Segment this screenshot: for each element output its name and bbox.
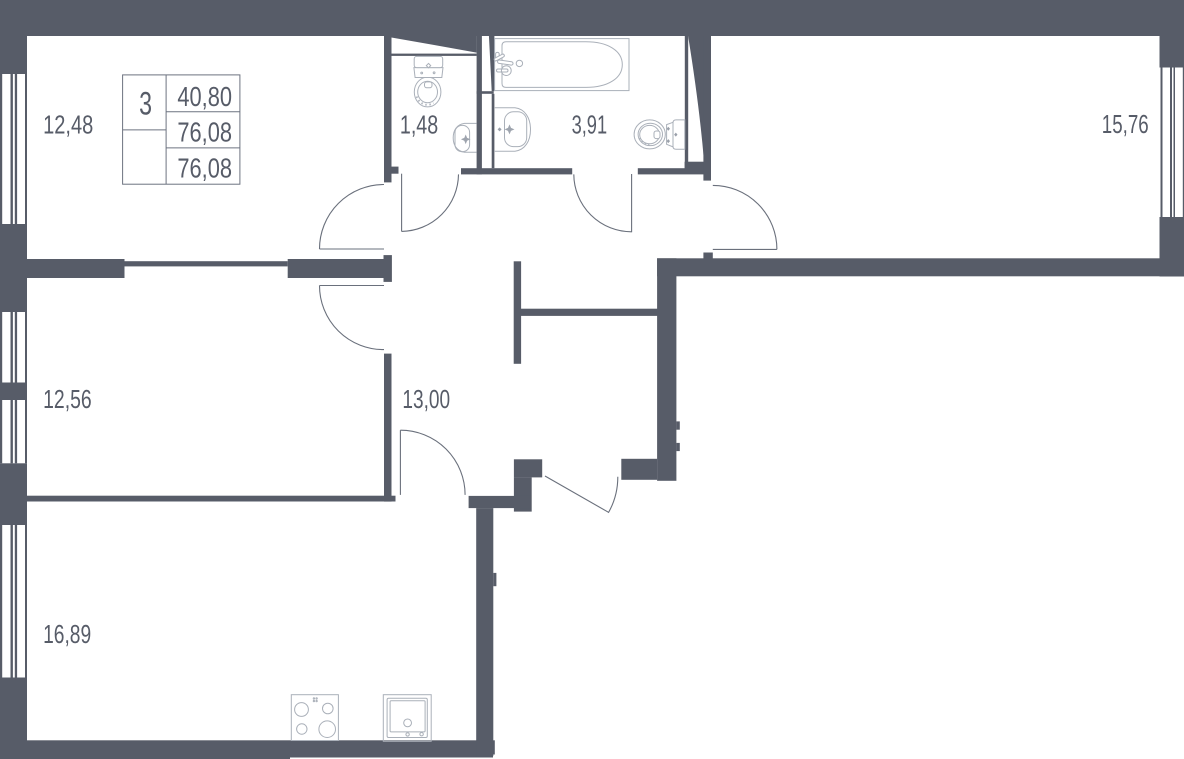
svg-text:12,56: 12,56 <box>43 384 92 414</box>
svg-text:1,48: 1,48 <box>400 109 438 139</box>
svg-text:13,00: 13,00 <box>402 384 450 414</box>
svg-text:15,76: 15,76 <box>1102 109 1149 139</box>
svg-text:3: 3 <box>139 86 152 122</box>
svg-text:76,08: 76,08 <box>177 116 232 147</box>
svg-text:76,08: 76,08 <box>177 153 232 184</box>
svg-text:16,89: 16,89 <box>43 619 91 649</box>
svg-text:12,48: 12,48 <box>43 109 93 139</box>
svg-text:3,91: 3,91 <box>572 110 608 140</box>
svg-text:40,80: 40,80 <box>177 81 232 112</box>
